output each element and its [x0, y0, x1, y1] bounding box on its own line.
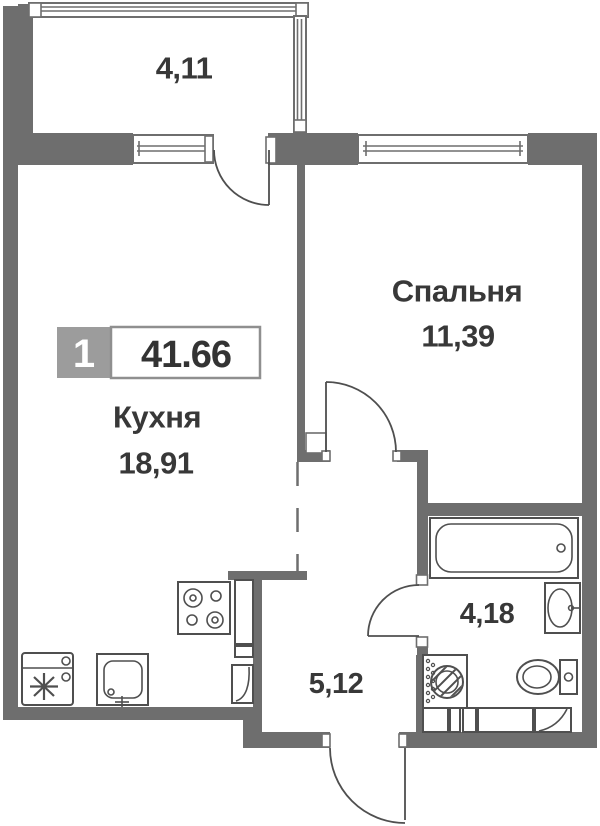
room-count-value: 1 — [73, 332, 95, 376]
floor-plan: 1 41.66 4,11 Спальня 11,39 Кухня 18,91 4… — [0, 0, 600, 826]
total-area-value: 41.66 — [141, 334, 231, 376]
entrance-door — [322, 734, 407, 823]
kitchen-sink — [97, 654, 148, 707]
stove — [178, 582, 230, 634]
toilet — [517, 660, 577, 694]
bathroom-door — [368, 575, 428, 647]
floor-plan-drawing: 1 41.66 4,11 Спальня 11,39 Кухня 18,91 4… — [0, 0, 600, 826]
balcony-area-label: 4,11 — [156, 51, 213, 86]
bedroom-window — [358, 135, 528, 163]
balcony-top-window — [29, 3, 308, 17]
bathroom-area-label: 4,18 — [460, 598, 515, 630]
snowflake-icon — [30, 673, 58, 700]
kitchen-area-label: 18,91 — [118, 446, 193, 481]
washing-machine — [423, 651, 474, 712]
hallway-area-label: 5,12 — [309, 668, 363, 700]
kitchen-window — [133, 135, 213, 163]
bathroom-cabinets — [423, 708, 571, 732]
kitchen-counter — [232, 580, 253, 703]
apartment-badge: 1 41.66 — [57, 327, 260, 378]
kitchen-name-label: Кухня — [113, 400, 201, 435]
balcony-door — [205, 136, 276, 205]
balcony-side-window — [294, 16, 306, 132]
refrigerator — [22, 653, 73, 705]
wash-basin — [545, 583, 580, 633]
bedroom-name-label: Спальня — [392, 274, 522, 309]
bedroom-door — [306, 382, 401, 461]
bathtub — [430, 518, 578, 578]
bedroom-area-label: 11,39 — [421, 319, 495, 354]
